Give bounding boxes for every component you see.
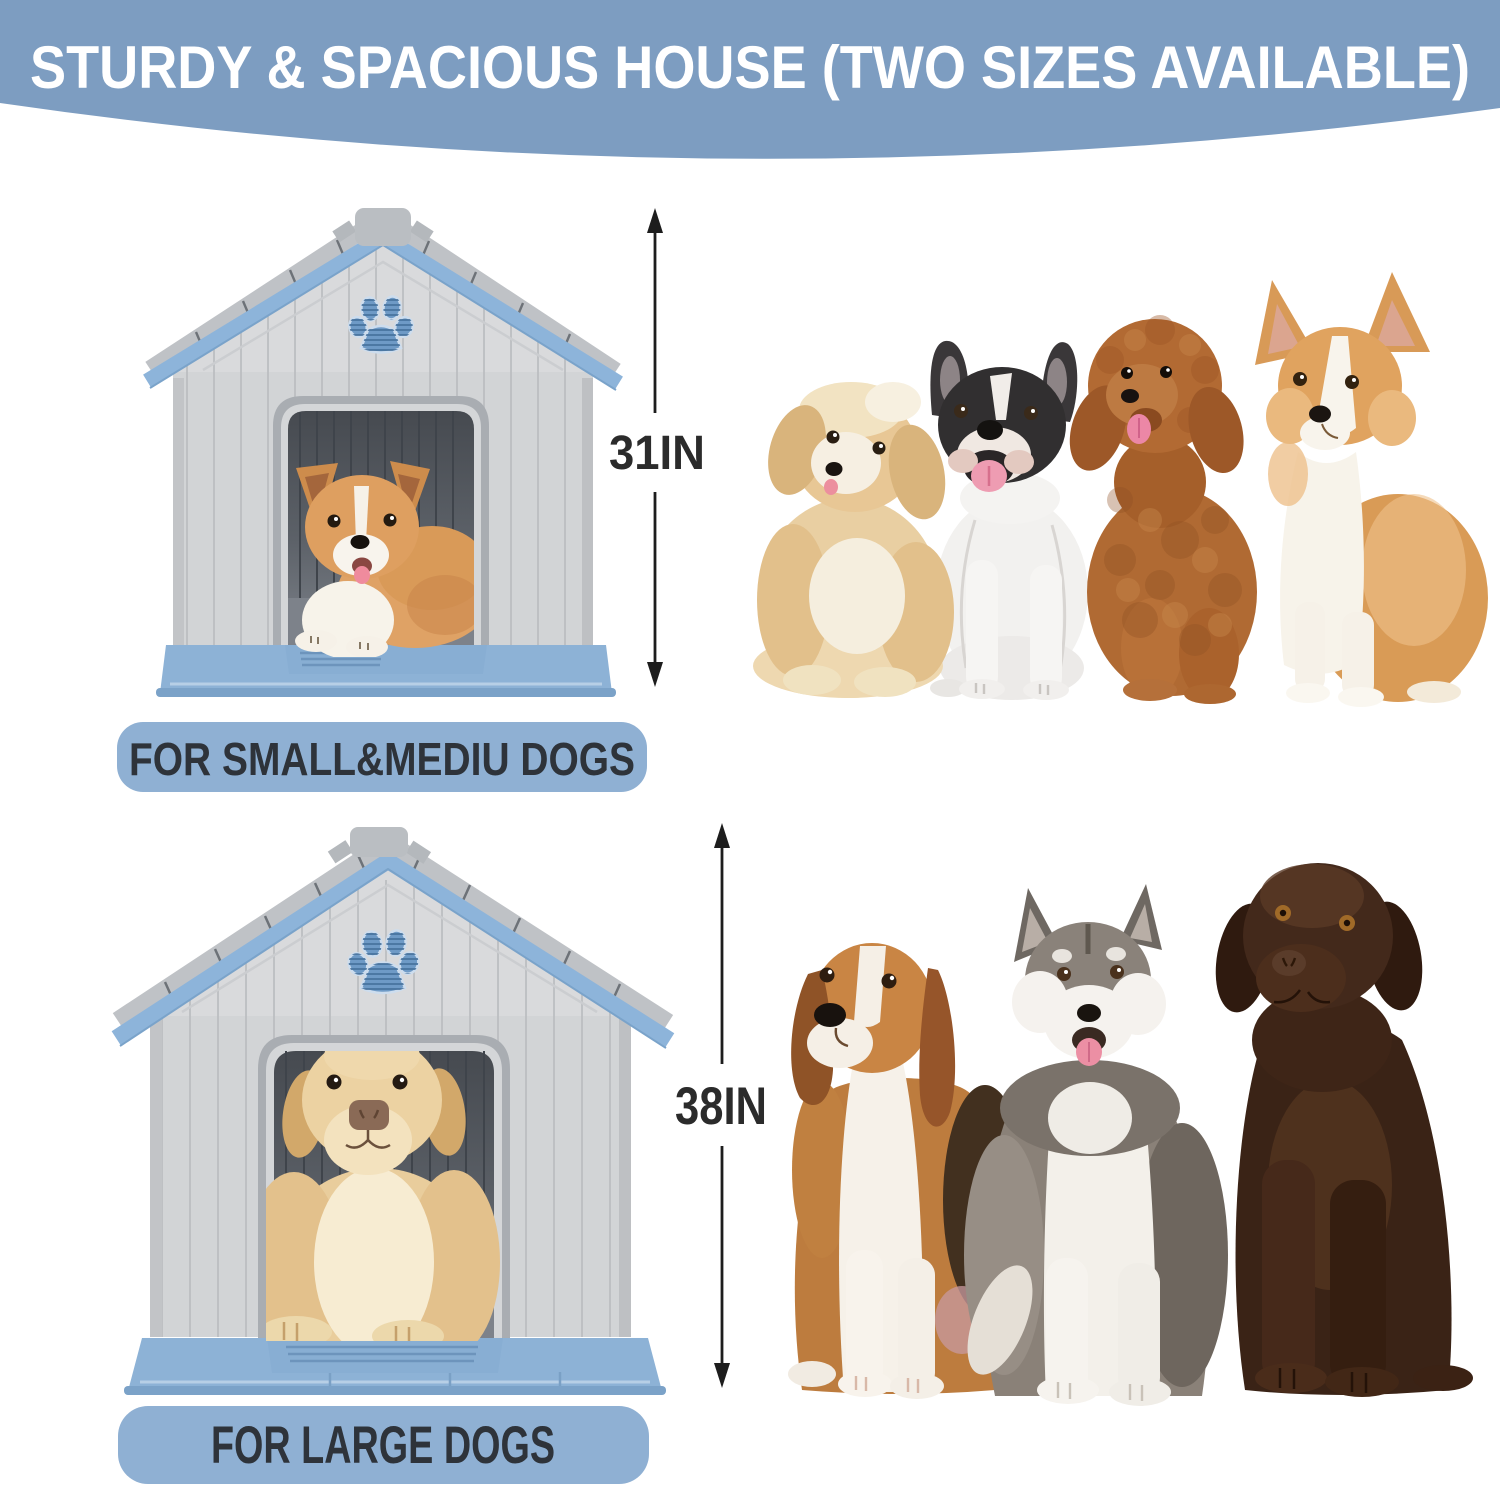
svg-text:FOR LARGE DOGS: FOR LARGE DOGS xyxy=(211,1416,555,1475)
svg-text:38IN: 38IN xyxy=(675,1077,767,1136)
svg-text:31IN: 31IN xyxy=(609,427,705,480)
svg-text:FOR SMALL&MEDIU DOGS: FOR SMALL&MEDIU DOGS xyxy=(129,733,635,785)
svg-text:STURDY & SPACIOUS HOUSE (TWO S: STURDY & SPACIOUS HOUSE (TWO SIZES AVAIL… xyxy=(30,34,1470,101)
